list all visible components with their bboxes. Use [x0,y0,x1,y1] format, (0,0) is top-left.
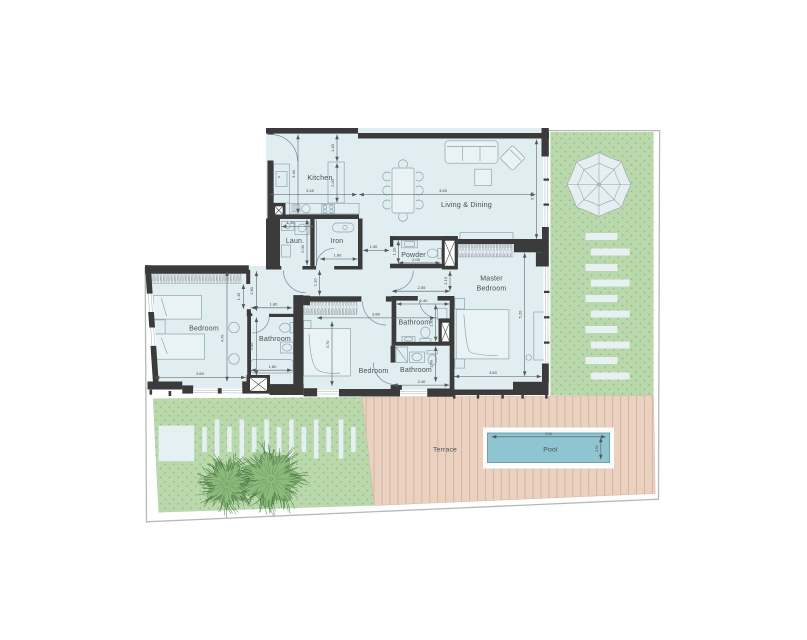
svg-text:Bedroom: Bedroom [477,286,507,293]
svg-text:3.45: 3.45 [306,188,315,193]
svg-text:1.80: 1.80 [334,253,343,258]
svg-text:Bedroom: Bedroom [359,368,389,375]
svg-text:1.10: 1.10 [313,278,318,287]
svg-text:1.30: 1.30 [370,244,379,249]
svg-text:1.80: 1.80 [249,286,254,295]
svg-text:Pool: Pool [543,447,558,454]
svg-text:3.60: 3.60 [196,371,205,376]
svg-text:3.00: 3.00 [249,342,254,351]
svg-text:Living & Dining: Living & Dining [441,200,492,209]
svg-text:3.40: 3.40 [291,169,296,178]
svg-text:5.20: 5.20 [529,191,534,200]
svg-text:1.80: 1.80 [269,364,278,369]
svg-text:3.80: 3.80 [372,312,381,317]
svg-text:4.70: 4.70 [220,334,225,343]
svg-text:Bathroom: Bathroom [259,336,291,343]
svg-text:1.45: 1.45 [287,220,296,225]
svg-text:2.50: 2.50 [595,445,599,452]
svg-text:3.45: 3.45 [439,188,448,193]
svg-text:Kitchen: Kitchen [307,173,332,182]
svg-text:5.00: 5.00 [545,432,552,436]
svg-text:Iron: Iron [331,238,344,245]
svg-text:1.40: 1.40 [330,143,335,152]
svg-text:2.55: 2.55 [418,285,427,290]
svg-text:1.20: 1.20 [391,247,396,256]
svg-text:Master: Master [480,276,503,283]
svg-text:1.80: 1.80 [270,302,279,307]
svg-text:1.10: 1.10 [443,276,448,285]
svg-text:Bathroom: Bathroom [399,320,431,327]
svg-text:Bedroom: Bedroom [189,325,219,332]
svg-text:2.40: 2.40 [420,298,429,303]
svg-text:3.60: 3.60 [489,370,498,375]
svg-text:3.70: 3.70 [325,340,330,349]
svg-text:2.40: 2.40 [418,379,427,384]
svg-text:1.15: 1.15 [236,292,241,301]
svg-text:Laun.: Laun. [286,238,304,245]
svg-text:Bathroom: Bathroom [400,367,432,374]
svg-text:Terrace: Terrace [433,447,457,454]
svg-text:2.00: 2.00 [300,244,305,253]
svg-text:Powder: Powder [401,252,426,259]
svg-text:5.20: 5.20 [518,310,523,319]
